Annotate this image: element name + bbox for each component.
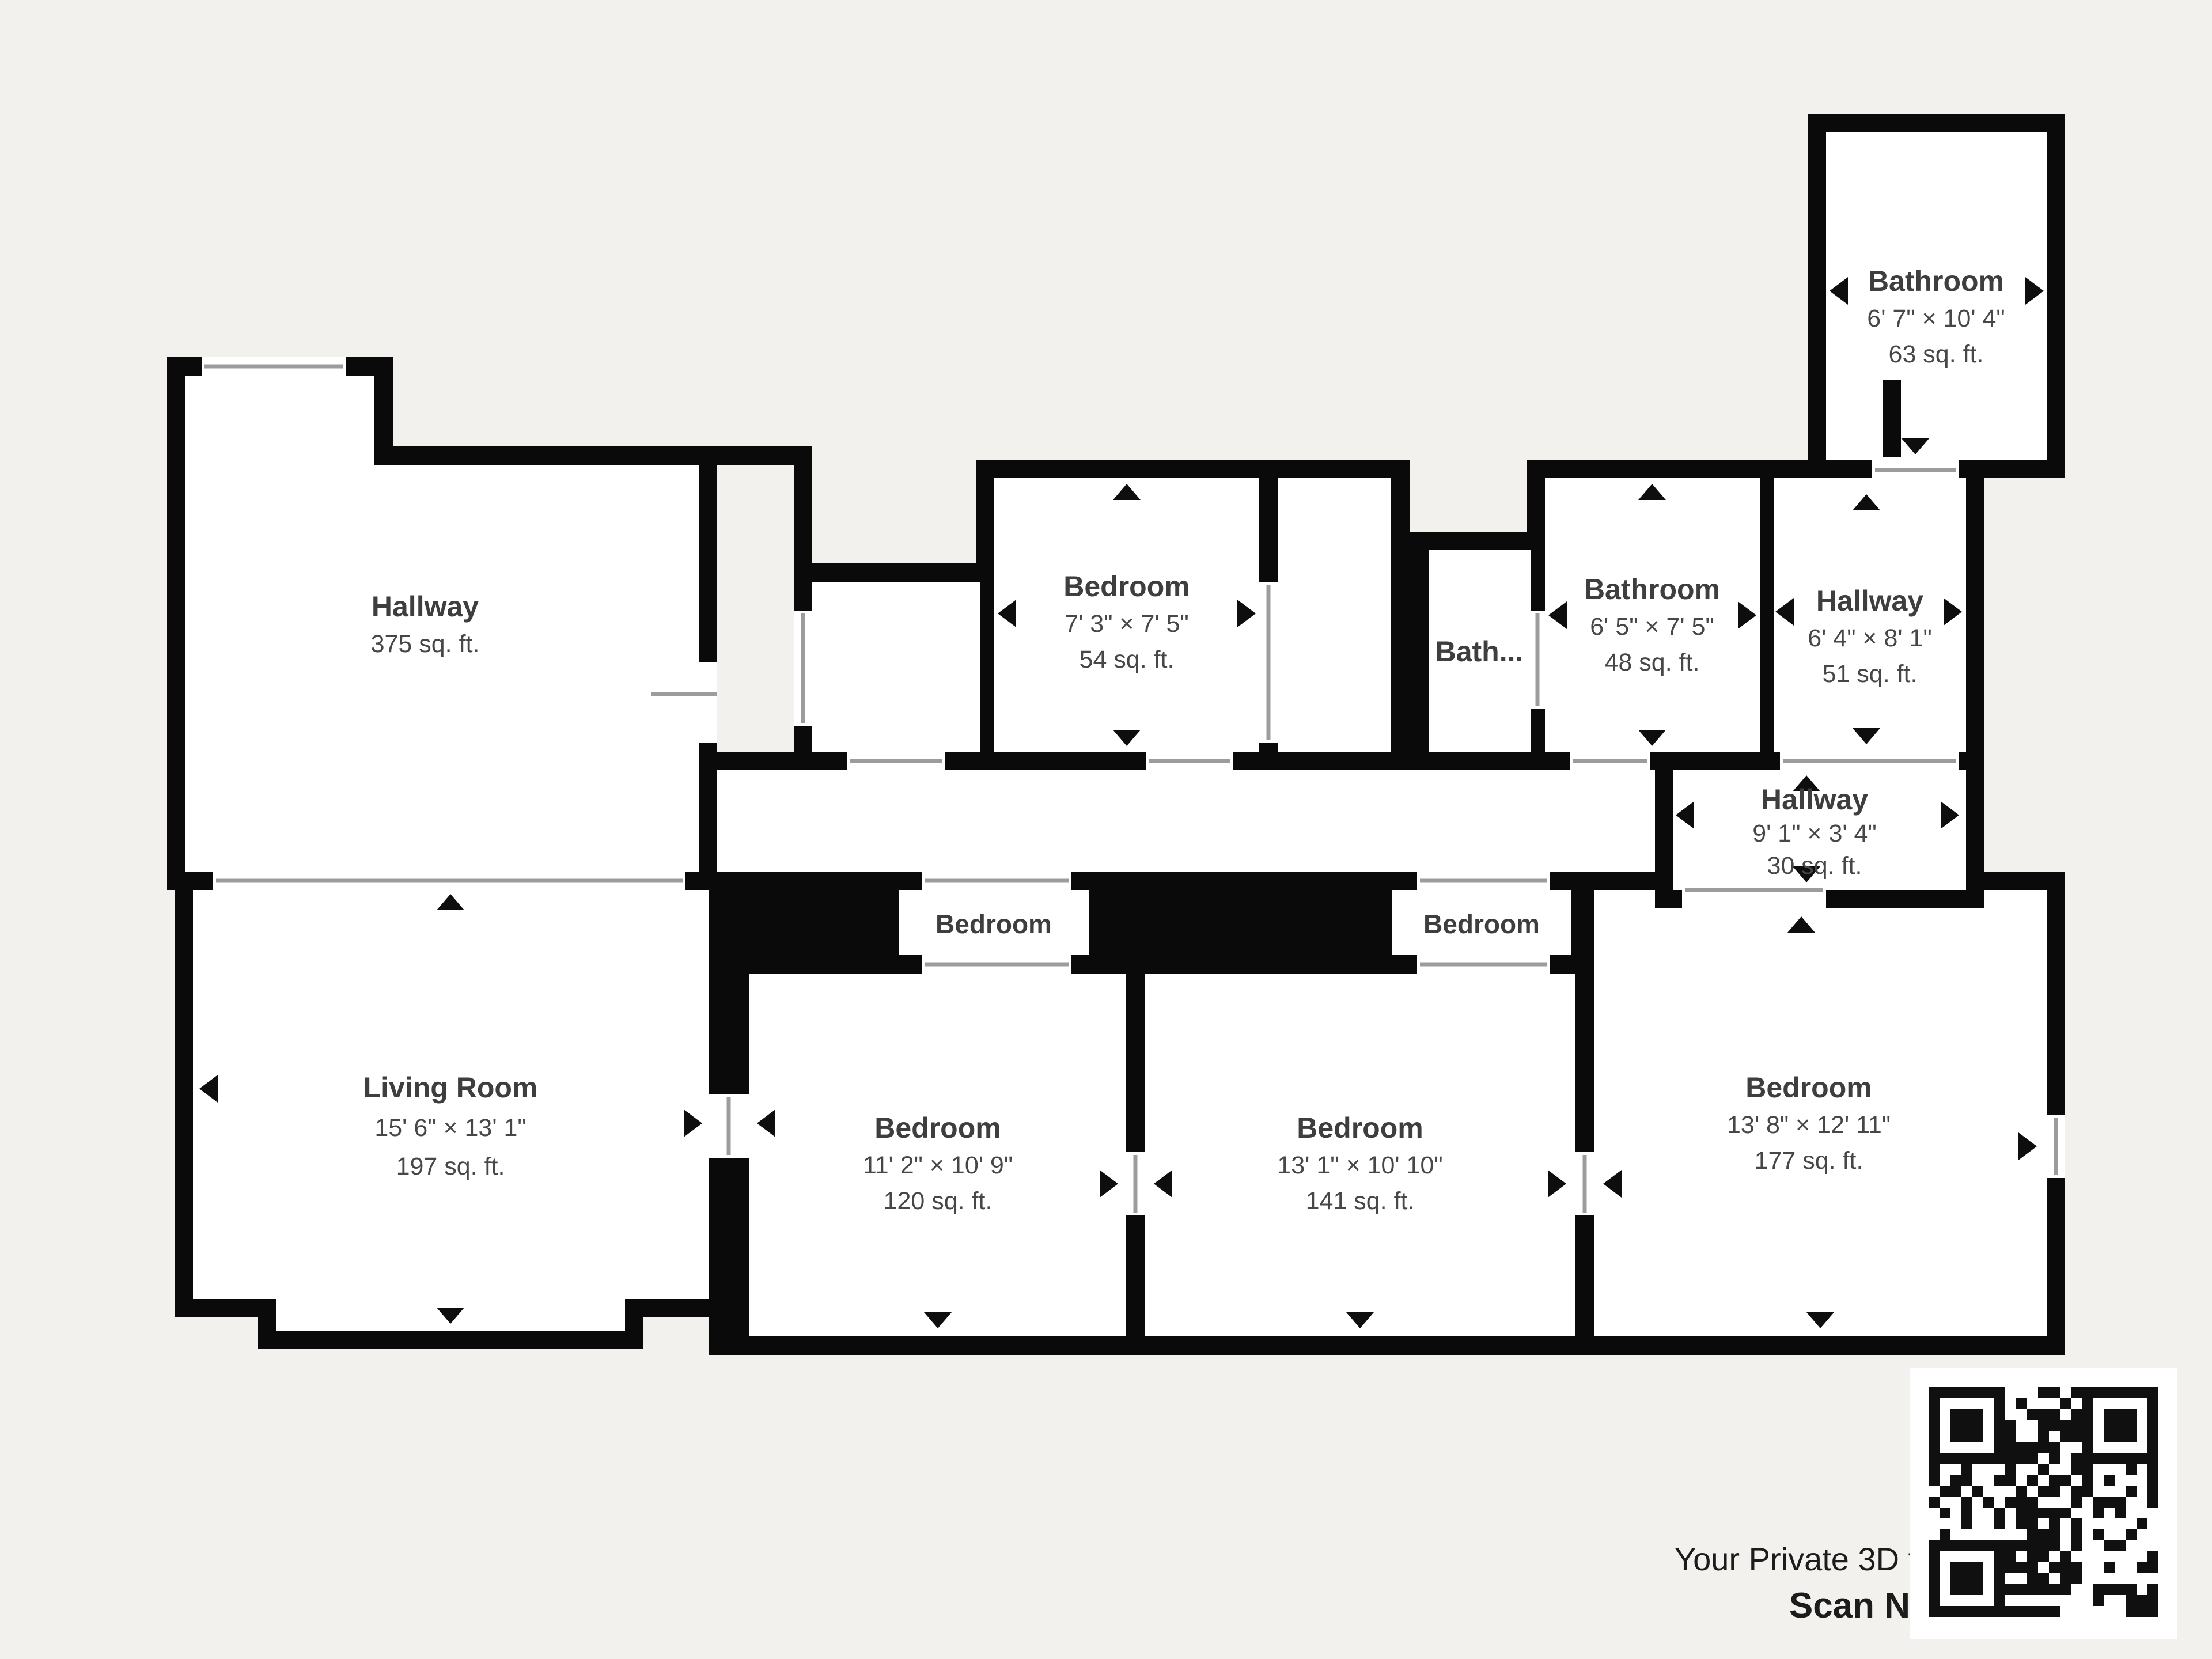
qr-module <box>1950 1409 1983 1442</box>
qr-module <box>2060 1398 2071 1409</box>
qr-module <box>2005 1475 2016 1486</box>
qr-module <box>2104 1497 2115 1508</box>
label-bedroom-middle-dims: 13' 1" × 10' 10" <box>1277 1152 1442 1179</box>
qr-module <box>2147 1595 2158 1606</box>
qr-module <box>2049 1540 2060 1551</box>
qr-module <box>1961 1464 1972 1475</box>
qr-module <box>2027 1551 2038 1562</box>
qr-module <box>2147 1475 2158 1486</box>
qr-module <box>2016 1453 2027 1464</box>
qr-module <box>2126 1486 2137 1497</box>
qr-module <box>2049 1518 2060 1529</box>
qr-module <box>2071 1420 2082 1431</box>
qr-module <box>2049 1606 2060 1617</box>
qr-module <box>2126 1464 2137 1475</box>
qr-module <box>2038 1431 2049 1442</box>
label-bathroom-mid-name: Bathroom <box>1584 573 1720 605</box>
qr-module <box>1972 1486 1983 1497</box>
qr-module <box>2071 1453 2082 1464</box>
qr-module <box>2060 1475 2071 1486</box>
qr-module <box>2038 1409 2049 1420</box>
qr-module <box>2027 1584 2038 1595</box>
qr-module <box>2038 1387 2049 1398</box>
qr-module <box>1940 1508 1950 1518</box>
qr-module <box>2115 1508 2126 1518</box>
qr-module <box>2147 1551 2158 1562</box>
qr-module <box>2104 1562 2115 1573</box>
qr-module <box>2016 1562 2027 1573</box>
qr-module <box>1950 1562 1983 1595</box>
qr-module <box>2027 1442 2038 1453</box>
qr-module <box>2115 1497 2126 1508</box>
qr-module <box>2082 1486 2093 1497</box>
qr-module <box>2049 1584 2060 1595</box>
room-living <box>193 890 709 1331</box>
qr-module <box>2093 1508 2104 1518</box>
qr-module <box>2049 1442 2060 1453</box>
qr-module <box>2027 1606 2038 1617</box>
qr-module <box>2071 1497 2082 1508</box>
room-closet-top <box>812 582 980 752</box>
qr-module <box>2027 1562 2038 1573</box>
qr-module <box>2147 1606 2158 1617</box>
qr-module <box>2038 1420 2049 1431</box>
qr-module <box>2060 1562 2071 1573</box>
qr-module <box>2071 1409 2082 1420</box>
qr-module <box>2049 1562 2060 1573</box>
qr-module <box>2060 1551 2071 1562</box>
label-bedroom-middle-area: 141 sq. ft. <box>1306 1187 1415 1215</box>
label-closet-a-name: Bedroom <box>935 909 1052 939</box>
qr-module <box>2147 1497 2158 1508</box>
qr-module <box>2071 1464 2082 1475</box>
qr-module <box>2147 1486 2158 1497</box>
label-hallway-main-area: 375 sq. ft. <box>371 630 480 658</box>
qr-module <box>2147 1562 2158 1573</box>
room-storage <box>1278 478 1391 752</box>
label-hallway-main-name: Hallway <box>372 590 479 623</box>
qr-module <box>1983 1497 1994 1508</box>
label-closet-b-name: Bedroom <box>1423 909 1540 939</box>
qr-module <box>2049 1486 2060 1497</box>
room-hallway-main-right <box>374 465 699 872</box>
label-bedroom-left-area: 120 sq. ft. <box>884 1187 993 1215</box>
label-hallway-lower-dims: 9' 1" × 3' 4" <box>1752 820 1877 847</box>
qr-module <box>2016 1540 2027 1551</box>
room-corridor <box>717 770 1655 872</box>
wall-void-right <box>794 446 812 582</box>
qr-module <box>2126 1606 2137 1617</box>
qr-module <box>2049 1508 2060 1518</box>
qr-module <box>1994 1508 2005 1518</box>
qr-module <box>2016 1486 2027 1497</box>
qr-module <box>2038 1464 2049 1475</box>
wall-bathroom-stub <box>1883 380 1901 460</box>
qr-module <box>2027 1540 2038 1551</box>
qr-module <box>2038 1584 2049 1595</box>
qr-module <box>2071 1486 2082 1497</box>
wall-filler-2 <box>1089 872 1392 974</box>
qr-module <box>2104 1540 2115 1551</box>
qr-module <box>2027 1497 2038 1508</box>
qr-module <box>2016 1584 2027 1595</box>
room-hallway-main-left <box>185 376 374 872</box>
label-hallway-upper-name: Hallway <box>1816 585 1923 617</box>
label-hallway-upper-area: 51 sq. ft. <box>1823 660 1918 688</box>
label-living-dims: 15' 6" × 13' 1" <box>374 1114 526 1142</box>
qr-module <box>2104 1475 2115 1486</box>
qr-module <box>2060 1431 2071 1442</box>
qr-module <box>2005 1540 2016 1551</box>
floor-plan: Hallway 375 sq. ft. Bedroom 7' 3" × 7' 5… <box>0 0 2212 1659</box>
qr-module <box>2137 1606 2147 1617</box>
qr-module <box>2005 1497 2016 1508</box>
qr-module <box>2126 1584 2137 1595</box>
qr-module <box>2027 1453 2038 1464</box>
label-bathroom-mid-dims: 6' 5" × 7' 5" <box>1590 613 1714 641</box>
qr-code <box>1910 1368 2177 1639</box>
qr-module <box>1961 1475 1972 1486</box>
label-bathroom-ensuite-dims: 6' 7" × 10' 4" <box>1867 305 2005 332</box>
qr-module <box>2147 1584 2158 1595</box>
qr-module <box>2071 1540 2082 1551</box>
label-bathroom-mid-area: 48 sq. ft. <box>1605 649 1700 676</box>
label-bath-small-name: Bath... <box>1435 635 1524 668</box>
qr-module <box>2049 1475 2060 1486</box>
qr-module <box>2049 1529 2060 1540</box>
qr-module <box>1950 1475 1961 1486</box>
qr-module <box>2137 1595 2147 1606</box>
qr-module <box>2016 1508 2027 1518</box>
qr-module <box>2071 1562 2082 1573</box>
qr-module <box>2071 1573 2082 1584</box>
qr-module <box>2027 1529 2038 1540</box>
qr-module <box>1961 1497 1972 1508</box>
label-bathroom-ensuite-name: Bathroom <box>1868 265 2004 297</box>
qr-module <box>2005 1584 2016 1595</box>
label-hallway-lower-area: 30 sq. ft. <box>1767 852 1862 880</box>
label-bedroom-left-dims: 11' 2" × 10' 9" <box>863 1152 1013 1179</box>
qr-module <box>2005 1606 2016 1617</box>
qr-module <box>1994 1518 2005 1529</box>
qr-module <box>2016 1497 2027 1508</box>
qr-module <box>2049 1387 2060 1398</box>
qr-module <box>2038 1540 2049 1551</box>
door-hallway-void <box>699 662 717 743</box>
qr-module <box>2016 1518 2027 1529</box>
qr-module <box>2104 1584 2115 1595</box>
qr-module <box>2093 1595 2104 1606</box>
label-living-area: 197 sq. ft. <box>396 1153 505 1180</box>
label-living-name: Living Room <box>363 1071 538 1104</box>
qr-module <box>2137 1518 2147 1529</box>
qr-module <box>2060 1508 2071 1518</box>
qr-module <box>2060 1420 2071 1431</box>
qr-module <box>2027 1475 2038 1486</box>
qr-module <box>2005 1453 2016 1464</box>
qr-module <box>2049 1453 2060 1464</box>
label-hallway-upper-dims: 6' 4" × 8' 1" <box>1808 624 1932 652</box>
qr-module <box>1961 1518 1972 1529</box>
qr-module <box>2016 1398 2027 1409</box>
qr-module <box>2115 1584 2126 1595</box>
qr-module <box>2082 1475 2093 1486</box>
qr-module <box>1950 1486 1961 1497</box>
qr-module <box>2071 1387 2082 1398</box>
label-bathroom-ensuite-area: 63 sq. ft. <box>1889 340 1984 368</box>
qr-module <box>2038 1529 2049 1540</box>
qr-module <box>2093 1529 2104 1540</box>
qr-module <box>2027 1409 2038 1420</box>
qr-module <box>2038 1551 2049 1562</box>
qr-module <box>2060 1584 2071 1595</box>
qr-module <box>1940 1486 1950 1497</box>
qr-module <box>2005 1464 2016 1475</box>
qr-module <box>2071 1529 2082 1540</box>
qr-module <box>1961 1508 1972 1518</box>
qr-module <box>2082 1464 2093 1475</box>
qr-module <box>2005 1562 2016 1573</box>
label-bedroom-right-name: Bedroom <box>1745 1071 1872 1104</box>
qr-module <box>2038 1442 2049 1453</box>
qr-module <box>2104 1409 2137 1442</box>
wall-filler-1 <box>709 872 899 974</box>
label-bedroom-top-name: Bedroom <box>1063 570 1190 603</box>
qr-module <box>2016 1442 2027 1453</box>
label-hallway-lower-name: Hallway <box>1761 783 1868 816</box>
qr-module <box>2093 1497 2104 1508</box>
qr-module <box>2071 1431 2082 1442</box>
qr-module <box>2071 1518 2082 1529</box>
qr-module <box>2016 1606 2027 1617</box>
qr-module <box>2027 1518 2038 1529</box>
qr-module <box>1994 1475 2005 1486</box>
qr-module <box>2126 1529 2137 1540</box>
qr-module <box>1940 1529 1950 1540</box>
qr-module <box>2137 1562 2147 1573</box>
label-bedroom-right-area: 177 sq. ft. <box>1755 1147 1863 1175</box>
qr-module <box>2038 1486 2049 1497</box>
qr-module <box>1929 1497 1940 1508</box>
qr-module <box>2049 1420 2060 1431</box>
qr-module <box>2147 1464 2158 1475</box>
label-bedroom-middle-name: Bedroom <box>1297 1112 1423 1144</box>
qr-module <box>1929 1475 1940 1486</box>
qr-module <box>2027 1508 2038 1518</box>
qr-module <box>1929 1464 1940 1475</box>
qr-module <box>2005 1431 2016 1442</box>
qr-module <box>2060 1573 2071 1584</box>
label-bedroom-top-area: 54 sq. ft. <box>1080 646 1175 673</box>
qr-module <box>2027 1573 2038 1584</box>
qr-module <box>2005 1551 2016 1562</box>
qr-module <box>2049 1409 2060 1420</box>
qr-module <box>2005 1420 2016 1431</box>
qr-module <box>2005 1442 2016 1453</box>
qr-module <box>2038 1606 2049 1617</box>
label-bedroom-left-name: Bedroom <box>874 1112 1001 1144</box>
label-bedroom-right-dims: 13' 8" × 12' 11" <box>1727 1111 1891 1139</box>
qr-module <box>2038 1508 2049 1518</box>
qr-module <box>2038 1573 2049 1584</box>
qr-module <box>2093 1584 2104 1595</box>
qr-module <box>2115 1540 2126 1551</box>
label-bedroom-top-dims: 7' 3" × 7' 5" <box>1065 610 1189 638</box>
qr-module <box>2126 1595 2137 1606</box>
